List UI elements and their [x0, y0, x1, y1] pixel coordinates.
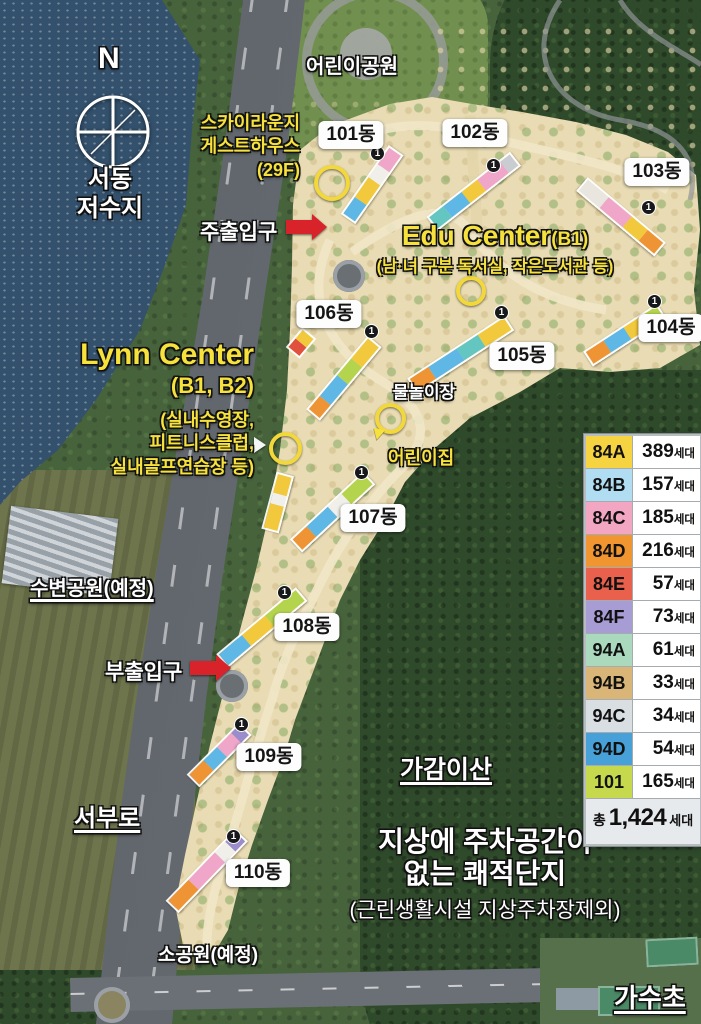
legend-type-cell: 84A [586, 436, 633, 468]
sky-lounge-label: 스카이라운지 게스트하우스 (29F) [178, 112, 300, 182]
legend-count-cell: 389세대 [633, 436, 700, 468]
legend-type-cell: 84B [586, 469, 633, 501]
legend-total-suffix: 세대 [669, 814, 693, 827]
legend-count-cell: 185세대 [633, 502, 700, 534]
legend-count-cell: 61세대 [633, 634, 700, 666]
edu-center-label: Edu Center(B1) (남·녀 구분 독서실, 작은도서관 등) [325, 222, 665, 277]
legend-count-cell: 73세대 [633, 601, 700, 633]
building-badge-108: 108동 [274, 613, 339, 641]
building-badge-103: 103동 [624, 158, 689, 186]
lynn-center-ring-marker [269, 432, 302, 465]
unit-1-marker: 1 [354, 465, 369, 480]
legend-type-cell: 84D [586, 535, 633, 567]
legend-type-cell: 94D [586, 733, 633, 765]
legend-count-cell: 33세대 [633, 667, 700, 699]
unit-1-marker: 1 [277, 585, 292, 600]
building-badge-104: 104동 [638, 314, 701, 342]
children-park-label: 어린이공원 [306, 50, 398, 79]
building-badge-106: 106동 [296, 300, 361, 328]
building-badge-102: 102동 [442, 119, 507, 147]
reservoir-label: 서동 저수지 [60, 166, 160, 224]
unit-1-marker: 1 [226, 829, 241, 844]
unit-1-marker: 1 [364, 324, 379, 339]
legend-count-cell: 157세대 [633, 469, 700, 501]
main-gate-label: 주출입구 [200, 216, 277, 246]
legend-type-cell: 84C [586, 502, 633, 534]
building-badge-101: 101동 [318, 121, 383, 149]
legend-total-value: 1,424 [609, 806, 667, 830]
legend-total-row: 총 1,424 세대 [586, 798, 700, 844]
legend-row: 94D54세대 [586, 732, 700, 765]
compass-icon [73, 92, 153, 172]
legend-row: 84A389세대 [586, 436, 700, 468]
legend-rows: 84A389세대84B157세대84C185세대84D216세대84E57세대8… [586, 436, 700, 798]
water-play-label: 물놀이장 [393, 378, 456, 403]
mountain-label: 가감이산 [400, 750, 492, 786]
legend-row: 84B157세대 [586, 468, 700, 501]
edu-center-ring-marker [456, 276, 486, 306]
site-plan-map: 1 1 1 1 1 1 1 1 1 1 N 서동 저수지 어린이공원 스카이라운… [0, 0, 701, 1024]
legend-type-cell: 84F [586, 601, 633, 633]
legend-row: 94A61세대 [586, 633, 700, 666]
legend-count-cell: 54세대 [633, 733, 700, 765]
building-badge-105: 105동 [489, 342, 554, 370]
main-gate-arrow-icon [286, 220, 312, 234]
building-badge-107: 107동 [340, 504, 405, 532]
compass-north-label: N [98, 42, 120, 76]
legend-count-cell: 34세대 [633, 700, 700, 732]
legend-type-cell: 94A [586, 634, 633, 666]
legend-type-cell: 94B [586, 667, 633, 699]
legend-row: 84E57세대 [586, 567, 700, 600]
legend-row: 84C185세대 [586, 501, 700, 534]
legend-total-label: 총 [593, 810, 606, 830]
legend-row: 94B33세대 [586, 666, 700, 699]
unit-1-marker: 1 [647, 294, 662, 309]
legend-type-cell: 84E [586, 568, 633, 600]
legend-row: 84F73세대 [586, 600, 700, 633]
legend-type-cell: 101 [586, 766, 633, 798]
legend-row: 84D216세대 [586, 534, 700, 567]
unit-1-marker: 1 [494, 305, 509, 320]
junction-roundabout [94, 987, 130, 1023]
sub-gate-arrow-icon [190, 661, 216, 675]
legend-type-cell: 94C [586, 700, 633, 732]
legend-count-cell: 57세대 [633, 568, 700, 600]
daycare-label: 어린이집 [388, 444, 454, 470]
sky-lounge-ring-marker [314, 165, 350, 201]
unit-1-marker: 1 [234, 717, 249, 732]
unit-type-legend: 84A389세대84B157세대84C185세대84D216세대84E57세대8… [584, 434, 701, 846]
legend-row: 94C34세대 [586, 699, 700, 732]
seobu-road-label: 서부로 [74, 798, 140, 833]
legend-row: 101165세대 [586, 765, 700, 798]
lynn-center-desc: (실내수영장, 피트니스클럽, 실내골프연습장 등) [58, 409, 254, 479]
lynn-center-pointer-icon [254, 437, 266, 453]
waterside-park-label: 수변공원(예정) [30, 572, 154, 601]
building-badge-110: 110동 [226, 859, 290, 887]
legend-count-cell: 216세대 [633, 535, 700, 567]
legend-count-cell: 165세대 [633, 766, 700, 798]
small-park-label: 소공원(예정) [158, 940, 258, 967]
building-badge-109: 109동 [236, 743, 301, 771]
unit-1-marker: 1 [641, 200, 656, 215]
sub-gate-label: 부출입구 [105, 656, 182, 686]
edu-center-desc: (남·녀 구분 독서실, 작은도서관 등) [325, 253, 665, 277]
school-label: 가수초 [614, 978, 686, 1015]
lynn-center-label: Lynn Center (B1, B2) (실내수영장, 피트니스클럽, 실내골… [58, 340, 254, 479]
unit-1-marker: 1 [486, 158, 501, 173]
